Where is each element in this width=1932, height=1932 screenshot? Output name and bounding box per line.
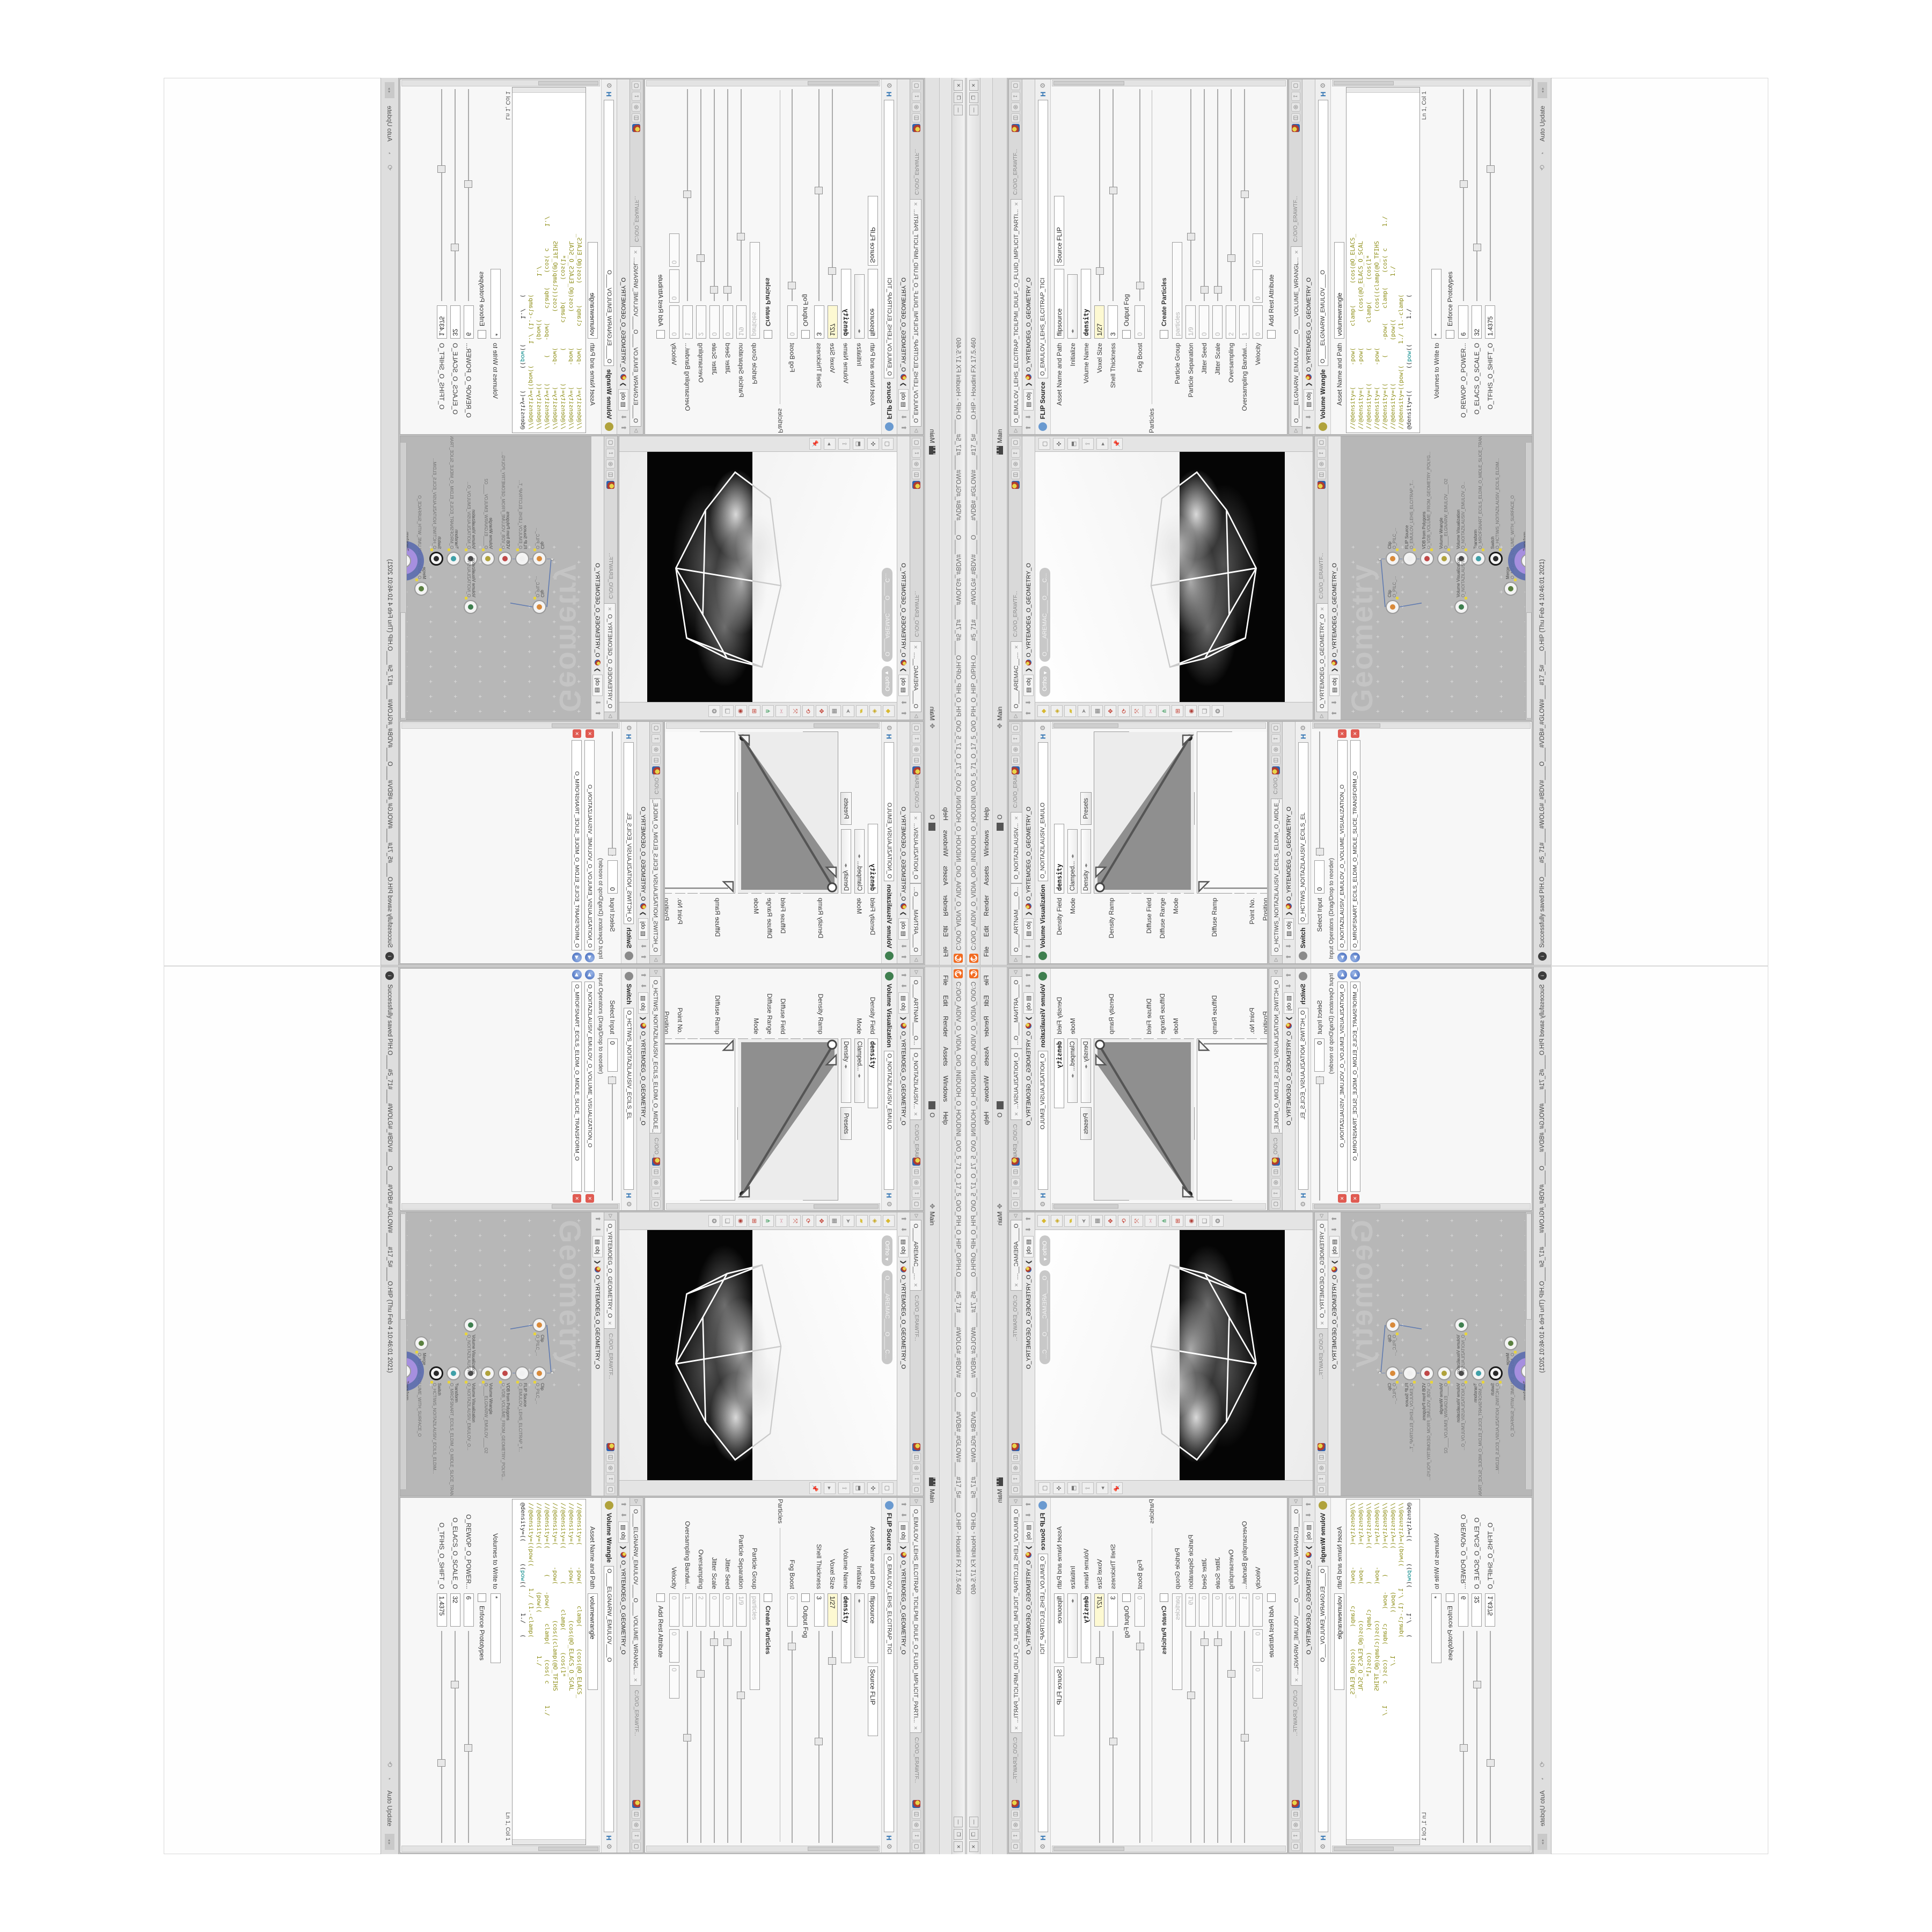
- pane-tab[interactable]: O_EMULOV_LEHS_ELCITRAP_TICILPMI_DIULF_O_…: [1011, 1505, 1022, 1733]
- close-icon[interactable]: ✕: [1294, 1678, 1300, 1682]
- help-icon[interactable]: H: [1319, 92, 1327, 97]
- node-sphere-icon[interactable]: [913, 1443, 921, 1451]
- param-field[interactable]: 0: [723, 1593, 733, 1627]
- pane-tab-secondary[interactable]: O____ARTNAM____O...: [910, 976, 921, 1049]
- pane-tab-filepath[interactable]: C:/O/O_ERAWTF...: [1293, 1690, 1299, 1800]
- desktop-selector-main[interactable]: Main: [928, 1489, 936, 1503]
- param-slider[interactable]: [710, 89, 719, 301]
- node-name-field[interactable]: O_HCTIWS_NOITAZILAUSIV_ECILS_EL: [1298, 1008, 1308, 1190]
- pin-icon[interactable]: ⟟: [1271, 734, 1280, 743]
- pane-tab-secondary[interactable]: O____ARTNAM____O...: [1011, 976, 1022, 1049]
- target-rings-icon[interactable]: ◎: [912, 459, 921, 469]
- param-field[interactable]: Source FLIP: [868, 196, 878, 266]
- checkbox[interactable]: [1446, 1593, 1454, 1602]
- breadcrumb-path[interactable]: O_YRTEMOEG_O_GEOMETRY_O: [901, 807, 907, 901]
- vex-code-editor[interactable]: //@density=( -pow( clamp( (cos(@O_ELACS_…: [1346, 1499, 1420, 1845]
- param-field[interactable]: 0: [608, 1038, 618, 1072]
- viewport-tool-icon[interactable]: ❏: [1198, 1215, 1210, 1227]
- node-name-field[interactable]: O_EMULOV_LEHS_ELCITRAP_TICI: [884, 100, 895, 378]
- node-name-field[interactable]: O_HCTIWS_NOITAZILAUSIV_ECILS_EL: [1298, 742, 1308, 924]
- breadcrumb-path[interactable]: O_YRTEMOEG_O_GEOMETRY_O: [1026, 1275, 1032, 1369]
- gear-icon[interactable]: ⚙: [1039, 725, 1046, 731]
- gear-icon[interactable]: ⚙: [605, 83, 613, 89]
- pane-collapse-icon[interactable]: ▷: [1013, 1498, 1019, 1505]
- node-sphere-icon[interactable]: [1012, 1158, 1020, 1166]
- param-slider[interactable]: [1199, 1631, 1209, 1843]
- param-field[interactable]: density: [868, 1038, 878, 1108]
- viewport-tool-icon[interactable]: ▰: [1064, 705, 1076, 717]
- layout-grid-icon[interactable]: [929, 1101, 936, 1109]
- param-field[interactable]: 0: [709, 1593, 720, 1627]
- minimize-icon[interactable]: —: [954, 105, 963, 115]
- viewport-tool-icon[interactable]: ⟳: [1118, 1215, 1130, 1227]
- viewport-tool-icon[interactable]: ◈: [869, 1215, 881, 1227]
- pane-tab-filepath[interactable]: C:/O/O_ERAWTF...: [1013, 1124, 1019, 1158]
- slider-handle[interactable]: [1136, 1643, 1144, 1650]
- param-slider[interactable]: [1485, 89, 1495, 301]
- menu-windows[interactable]: Windows: [942, 1071, 949, 1107]
- ortho-pill[interactable]: Ortho▾: [1040, 666, 1050, 697]
- density-ramp-editor[interactable]: [803, 1038, 838, 1201]
- pane-tab-filepath[interactable]: C:/O/O_ERAWTF...: [1013, 132, 1019, 195]
- network-node[interactable]: [1386, 552, 1400, 566]
- viewport-tool-icon[interactable]: ➤: [843, 1215, 854, 1227]
- maximize-pane-icon[interactable]: ▢: [1271, 723, 1280, 733]
- param-field[interactable]: 32: [450, 305, 460, 339]
- close-icon[interactable]: ✕: [913, 816, 919, 820]
- scrollbar[interactable]: [646, 80, 880, 86]
- maximize-pane-icon[interactable]: ▢: [632, 81, 641, 90]
- pane-tab-filepath[interactable]: C:/O/O_ERAWTF...: [1293, 132, 1299, 242]
- network-h-scrollbar[interactable]: [1525, 443, 1532, 720]
- breadcrumb-root[interactable]: ▤obj: [898, 675, 909, 696]
- forward-arrow-icon[interactable]: ⬇: [1305, 413, 1313, 421]
- param-field[interactable]: 0: [669, 1629, 679, 1663]
- node-sphere-icon[interactable]: [1012, 1800, 1020, 1808]
- param-field[interactable]: 0: [1253, 1665, 1263, 1699]
- cook-mode-selector[interactable]: Auto Update: [1539, 103, 1546, 145]
- param-field[interactable]: 1.4375: [437, 305, 447, 339]
- param-combo[interactable]: Clamped...◂▸: [1067, 1038, 1078, 1103]
- camera-pill[interactable]: O____AREMAC____O____C...: [882, 568, 892, 662]
- back-arrow-icon[interactable]: ⬆: [1305, 1500, 1313, 1509]
- close-icon[interactable]: ✕: [1014, 202, 1020, 206]
- pin-icon[interactable]: ⟟: [1011, 1189, 1020, 1198]
- input-operator-field[interactable]: O_MROFSNART_ECILS_ELDIM_O_MIDLE_SLICE_TR…: [572, 982, 582, 1192]
- vex-code-editor[interactable]: //@density=( -pow( clamp( (cos(@O_ELACS_…: [1346, 87, 1420, 433]
- checkbox[interactable]: [1122, 1593, 1131, 1602]
- param-slider[interactable]: [815, 89, 824, 301]
- param-slider[interactable]: [1213, 89, 1222, 301]
- viewport-tool-icon[interactable]: ⋔: [762, 705, 774, 717]
- menu-help[interactable]: Help: [983, 1107, 990, 1130]
- viewport-tool-icon[interactable]: ⊞: [749, 1215, 760, 1227]
- node-name-field[interactable]: O____ELGNARW_EMULOV____O: [604, 1566, 614, 1832]
- network-node[interactable]: [414, 582, 428, 596]
- param-slider[interactable]: [464, 1631, 473, 1843]
- param-slider[interactable]: [1472, 1631, 1481, 1843]
- close-icon[interactable]: ✕: [913, 202, 919, 206]
- menu-help[interactable]: Help: [942, 802, 949, 825]
- target-rings-icon[interactable]: ◎: [1011, 745, 1020, 754]
- maximize-pane-icon[interactable]: ▢: [1291, 1842, 1300, 1851]
- param-field[interactable]: flipsource: [1054, 269, 1064, 339]
- pane-tab-filepath[interactable]: C:/O/O_ERAWTF...: [1013, 489, 1019, 637]
- param-field[interactable]: 0: [669, 233, 679, 267]
- menu-render[interactable]: Render: [983, 1011, 990, 1042]
- maximize-pane-icon[interactable]: ▢: [1317, 438, 1326, 447]
- back-arrow-icon[interactable]: ⬆: [1024, 1500, 1033, 1509]
- pin-icon[interactable]: ⟟: [912, 1831, 921, 1840]
- vex-code-editor[interactable]: //@density=( -pow( clamp( (cos(@O_ELACS_…: [512, 87, 586, 433]
- viewport-tool-icon[interactable]: ➤: [843, 705, 854, 717]
- scrollbar-handle[interactable]: [1053, 723, 1118, 728]
- param-field[interactable]: 0: [1212, 1593, 1223, 1627]
- minimize-icon[interactable]: —: [954, 1817, 963, 1827]
- param-slider[interactable]: [1199, 89, 1209, 301]
- reorder-handle-icon[interactable]: ◀: [585, 953, 595, 962]
- forward-arrow-icon[interactable]: ⬇: [1024, 1511, 1033, 1519]
- param-field[interactable]: 0: [1314, 1038, 1324, 1072]
- slider-handle[interactable]: [1316, 1077, 1324, 1084]
- viewport-display-icon[interactable]: ⬒: [853, 1482, 865, 1494]
- pane-tab[interactable]: O_HCTIWS_NOITAZILAUSIV_ECILS_ELDIM_O_MID…: [1271, 976, 1282, 1133]
- slider-handle[interactable]: [1214, 1638, 1222, 1646]
- param-field[interactable]: volumewrangle: [588, 242, 598, 339]
- gear-icon[interactable]: ⚙: [1039, 1201, 1046, 1207]
- param-field[interactable]: 32: [450, 1593, 460, 1627]
- slider-handle[interactable]: [1487, 1759, 1495, 1767]
- back-arrow-icon[interactable]: ⬆: [899, 1214, 908, 1223]
- param-field[interactable]: particles: [750, 1593, 760, 1690]
- param-field[interactable]: 2: [696, 305, 706, 339]
- network-node[interactable]: [414, 1336, 428, 1350]
- param-slider[interactable]: [1226, 89, 1235, 301]
- checkbox[interactable]: [802, 1593, 810, 1602]
- desktop-tab-main[interactable]: Main: [996, 707, 1004, 721]
- param-field[interactable]: 0: [669, 305, 679, 339]
- pane-collapse-icon[interactable]: ▷: [914, 712, 920, 720]
- input-operator-field[interactable]: O_NOITAZILAUSIV_EMULOV_O_VOLUME_VISUALIZ…: [585, 740, 595, 950]
- close-icon[interactable]: ✕: [1014, 1726, 1020, 1730]
- pane-tab[interactable]: O____AREMAC__....✕: [1011, 1220, 1022, 1291]
- param-field[interactable]: *: [1431, 269, 1441, 339]
- gear-icon[interactable]: ⚙: [1039, 83, 1046, 89]
- node-sphere-icon[interactable]: [607, 1443, 615, 1451]
- menu-render[interactable]: Render: [942, 1011, 949, 1042]
- network-node[interactable]: [429, 1366, 443, 1380]
- slider-handle[interactable]: [451, 1681, 459, 1688]
- slider-handle[interactable]: [1201, 286, 1209, 294]
- network-node[interactable]: [1504, 1336, 1518, 1350]
- presets-button[interactable]: Presets: [840, 1107, 852, 1140]
- menu-render[interactable]: Render: [942, 890, 949, 921]
- network-node[interactable]: [1420, 1366, 1434, 1380]
- pane-tab[interactable]: O_HCTIWS_NOITAZILAUSIV_ECILS_ELDIM_O_MID…: [650, 976, 661, 1133]
- pin-icon[interactable]: ⟟: [1011, 1474, 1020, 1483]
- viewport-display-icon[interactable]: ▢: [1038, 1482, 1050, 1494]
- forward-arrow-icon[interactable]: ⬇: [899, 413, 908, 421]
- param-field[interactable]: volumewrangle: [588, 1593, 598, 1690]
- cube-icon[interactable]: ◫: [606, 470, 616, 479]
- viewport-display-icon[interactable]: ⬒: [853, 438, 865, 450]
- pane-tab[interactable]: O____AREMAC__....✕: [1011, 641, 1022, 712]
- section-label[interactable]: Particles: [777, 1499, 784, 1524]
- slider-handle[interactable]: [683, 1734, 691, 1741]
- forward-arrow-icon[interactable]: ⬇: [899, 1225, 908, 1234]
- breadcrumb-root[interactable]: ▤obj: [618, 1521, 628, 1543]
- pane-tab[interactable]: O____ELGNARW_EMULOV____O____VOLUME_WRANG…: [630, 1505, 641, 1686]
- node-name-field[interactable]: O_EMULOV_LEHS_ELCITRAP_TICI: [884, 1554, 895, 1832]
- node-name-field[interactable]: O_NOITAZILAUSIV_EMULO: [1038, 742, 1048, 881]
- breadcrumb-path[interactable]: O_YRTEMOEG_O_GEOMETRY_O: [1306, 277, 1312, 372]
- slider-handle[interactable]: [1214, 286, 1222, 294]
- param-slider[interactable]: [1186, 89, 1195, 301]
- pin-icon[interactable]: ⟟: [1291, 1831, 1300, 1840]
- help-icon[interactable]: H: [885, 1835, 894, 1840]
- cook-sphere-icon[interactable]: ◔: [385, 149, 394, 159]
- maximize-pane-icon[interactable]: ▢: [606, 438, 616, 447]
- network-node[interactable]: [1489, 552, 1503, 566]
- input-operator-field[interactable]: O_MROFSNART_ECILS_ELDIM_O_MIDLE_SLICE_TR…: [1350, 740, 1360, 950]
- param-combo[interactable]: Clamped...◂▸: [1067, 829, 1078, 894]
- close-icon[interactable]: ✕: [969, 1841, 978, 1852]
- scrollbar-handle[interactable]: [814, 723, 879, 728]
- param-slider[interactable]: [683, 1631, 692, 1843]
- param-field[interactable]: 1.4375: [437, 1593, 447, 1627]
- pane-tab[interactable]: O_NOITAZILAUSIV...✕: [910, 812, 921, 883]
- param-slider[interactable]: [1459, 1631, 1468, 1843]
- forward-arrow-icon[interactable]: ⬇: [639, 982, 648, 990]
- slider-handle[interactable]: [815, 187, 823, 194]
- pane-collapse-icon[interactable]: ▷: [1293, 1498, 1299, 1505]
- pane-tab-secondary[interactable]: O____ARTNAM____O...: [1011, 883, 1022, 956]
- viewport-tool-icon[interactable]: ⟳: [802, 705, 814, 717]
- close-icon[interactable]: ✕: [1014, 645, 1020, 649]
- breadcrumb-path[interactable]: O_YRTEMOEG_O_GEOMETRY_O: [640, 807, 647, 901]
- node-name-field[interactable]: O____ELGNARW_EMULOV____O: [1318, 1566, 1328, 1832]
- checkbox[interactable]: [764, 1593, 773, 1602]
- viewport-tool-icon[interactable]: ✥: [816, 1215, 828, 1227]
- breadcrumb-root[interactable]: ▤obj: [898, 1236, 909, 1257]
- gear-icon[interactable]: ⚙: [605, 1843, 613, 1849]
- network-node[interactable]: [515, 1366, 529, 1380]
- delete-icon[interactable]: ✕: [1338, 729, 1346, 738]
- param-field[interactable]: *: [1431, 1593, 1441, 1663]
- scrollbar[interactable]: [1312, 1203, 1531, 1210]
- maximize-pane-icon[interactable]: ▢: [632, 1842, 641, 1851]
- cube-icon[interactable]: ◫: [1291, 113, 1300, 122]
- viewport-tool-icon[interactable]: ▰: [856, 1215, 868, 1227]
- viewport-display-icon[interactable]: 📌: [809, 438, 821, 450]
- help-icon[interactable]: H: [1039, 1835, 1047, 1840]
- param-slider[interactable]: [1240, 1631, 1249, 1843]
- viewport-tool-icon[interactable]: ◈: [869, 705, 881, 717]
- viewport-tool-icon[interactable]: ✥: [1104, 705, 1116, 717]
- forward-arrow-icon[interactable]: ⬇: [1285, 982, 1293, 990]
- breadcrumb-path[interactable]: O_YRTEMOEG_O_GEOMETRY_O: [1026, 563, 1032, 657]
- help-icon[interactable]: H: [1299, 1193, 1307, 1198]
- pane-splitter-handle[interactable]: ◂ ▸: [1538, 82, 1547, 98]
- param-slider[interactable]: [1108, 89, 1117, 301]
- network-canvas[interactable]: + + + + + + + + + + + + + + + + + + + + …: [400, 1212, 591, 1496]
- scrollbar-handle[interactable]: [1314, 1204, 1380, 1209]
- diffuse-ramp-editor[interactable]: [700, 731, 735, 894]
- param-field[interactable]: particles: [750, 242, 760, 339]
- pane-collapse-icon[interactable]: ▷: [654, 956, 660, 963]
- pane-tab-filepath[interactable]: C:/O/O_ERAWTF...: [1013, 1295, 1019, 1443]
- param-combo[interactable]: ◂▸: [1067, 1593, 1078, 1658]
- maximize-pane-icon[interactable]: ▢: [1271, 1199, 1280, 1209]
- scrollbar-handle[interactable]: [1053, 81, 1124, 85]
- cube-icon[interactable]: ◫: [652, 756, 661, 765]
- param-combo[interactable]: Clamped...◂▸: [854, 1038, 865, 1103]
- pin-icon[interactable]: ⟟: [1011, 734, 1020, 743]
- node-name-field[interactable]: O_NOITAZILAUSIV_EMULO: [1038, 1051, 1048, 1190]
- breadcrumb-path[interactable]: O_YRTEMOEG_O_GEOMETRY_O: [1026, 1560, 1032, 1655]
- delete-icon[interactable]: ✕: [1338, 1194, 1346, 1203]
- slider-handle[interactable]: [683, 191, 691, 199]
- cube-icon[interactable]: ◫: [1011, 756, 1020, 765]
- param-combo[interactable]: ◂▸: [854, 1593, 865, 1658]
- node-sphere-icon[interactable]: [633, 124, 641, 132]
- viewport-display-icon[interactable]: 📌: [1111, 1482, 1123, 1494]
- cube-icon[interactable]: ◫: [912, 1810, 921, 1819]
- viewport-tool-icon[interactable]: ◉: [1185, 705, 1197, 717]
- target-rings-icon[interactable]: ◎: [1291, 103, 1300, 112]
- target-rings-icon[interactable]: ◎: [632, 103, 641, 112]
- menu-file[interactable]: File: [942, 970, 949, 990]
- desktop-selector-main[interactable]: Main: [928, 429, 936, 443]
- gear-icon[interactable]: ⚙: [885, 1201, 893, 1207]
- param-field[interactable]: 1.4375: [1485, 305, 1495, 339]
- delete-icon[interactable]: ✕: [586, 729, 594, 738]
- viewport-tool-icon[interactable]: ⟳: [1118, 705, 1130, 717]
- maximize-pane-icon[interactable]: ▢: [912, 1199, 921, 1209]
- pin-icon[interactable]: ⟟: [912, 92, 921, 101]
- target-rings-icon[interactable]: ◎: [1271, 745, 1280, 754]
- param-slider[interactable]: [697, 89, 706, 301]
- pane-collapse-icon[interactable]: ▷: [1319, 1212, 1324, 1220]
- checkbox[interactable]: [1160, 330, 1168, 339]
- scrollbar-handle[interactable]: [1314, 723, 1380, 728]
- pane-tab-filepath[interactable]: C:/O/O_ERAWTF...: [914, 1295, 920, 1443]
- slider-handle[interactable]: [710, 286, 718, 294]
- scrollbar[interactable]: [666, 1203, 880, 1210]
- maximize-pane-icon[interactable]: ▢: [652, 1199, 661, 1209]
- breadcrumb-path[interactable]: O_YRTEMOEG_O_GEOMETRY_O: [901, 1560, 907, 1655]
- back-arrow-icon[interactable]: ⬆: [594, 709, 602, 718]
- layout-grid-icon[interactable]: [997, 823, 1004, 831]
- param-field[interactable]: 1/27: [828, 305, 838, 339]
- network-node[interactable]: [1386, 1366, 1400, 1380]
- cube-icon[interactable]: ◫: [1011, 1167, 1020, 1176]
- checkbox[interactable]: [657, 1593, 665, 1602]
- pane-tab-filepath[interactable]: C:/O/O_ERAWTF...: [1013, 1737, 1019, 1800]
- param-field[interactable]: 0: [1253, 269, 1263, 303]
- maximize-pane-icon[interactable]: ▢: [1011, 1842, 1020, 1851]
- param-slider[interactable]: [1213, 1631, 1222, 1843]
- slider-handle[interactable]: [1109, 1738, 1117, 1745]
- node-name-field[interactable]: O____ELGNARW_EMULOV____O: [1318, 100, 1328, 366]
- pane-collapse-icon[interactable]: ▷: [1273, 956, 1279, 963]
- menu-file[interactable]: File: [983, 970, 990, 990]
- cube-icon[interactable]: ◫: [1317, 1453, 1326, 1462]
- target-rings-icon[interactable]: ◎: [1317, 1463, 1326, 1473]
- pane-tab[interactable]: O_NOITAZILAUSIV...✕: [910, 1049, 921, 1119]
- forward-arrow-icon[interactable]: ⬇: [619, 413, 628, 421]
- viewport-tool-icon[interactable]: ➤: [1078, 1215, 1089, 1227]
- checkbox[interactable]: [1267, 330, 1276, 339]
- viewport-tool-icon[interactable]: ◆: [1037, 705, 1049, 717]
- viewport-tool-icon[interactable]: ◆: [883, 1215, 895, 1227]
- cube-icon[interactable]: ◫: [912, 756, 921, 765]
- viewport-tool-icon[interactable]: ✂: [775, 1215, 787, 1227]
- pane-tab-filepath[interactable]: C:/O/O_ERAWTF...: [654, 774, 660, 794]
- param-slider[interactable]: [723, 89, 733, 301]
- viewport-tool-icon[interactable]: ▰: [1064, 1215, 1076, 1227]
- maximize-pane-icon[interactable]: ▢: [1011, 1199, 1020, 1209]
- diffuse-ramp-editor[interactable]: [1197, 1038, 1232, 1201]
- close-icon[interactable]: ✕: [1294, 250, 1300, 254]
- pane-tab[interactable]: O_EMULOV_LEHS_ELCITRAP_TICILPMI_DIULF_O_…: [1011, 199, 1022, 427]
- slider-handle[interactable]: [1187, 1692, 1195, 1699]
- slider-handle[interactable]: [1241, 191, 1249, 199]
- menu-windows[interactable]: Windows: [983, 825, 990, 861]
- param-combo[interactable]: ◂▸: [854, 274, 865, 339]
- viewport-tool-icon[interactable]: ⤧: [1131, 1215, 1143, 1227]
- section-label[interactable]: Particles: [777, 408, 784, 433]
- network-node[interactable]: [498, 552, 512, 566]
- slider-handle[interactable]: [451, 244, 459, 251]
- back-arrow-icon[interactable]: ⬆: [899, 953, 908, 961]
- pin-icon[interactable]: ⟟: [1317, 449, 1326, 458]
- network-node[interactable]: [464, 600, 478, 614]
- density-ramp-editor[interactable]: [803, 731, 838, 894]
- network-canvas[interactable]: + + + + + + + + + + + + + + + + + + + + …: [1341, 1212, 1532, 1496]
- checkbox[interactable]: [657, 330, 665, 339]
- param-slider[interactable]: [1315, 731, 1324, 856]
- camera-pill[interactable]: O____AREMAC____O____C...: [1040, 1270, 1050, 1364]
- viewport-display-icon[interactable]: ✜: [1053, 1482, 1065, 1494]
- forward-arrow-icon[interactable]: ⬇: [639, 942, 648, 950]
- viewport-tool-icon[interactable]: ◆: [883, 705, 895, 717]
- pin-icon[interactable]: ⟟: [606, 449, 616, 458]
- target-rings-icon[interactable]: ◎: [912, 1463, 921, 1473]
- param-slider[interactable]: [697, 1631, 706, 1843]
- reorder-handle-icon[interactable]: ◀: [1350, 970, 1360, 979]
- help-icon[interactable]: H: [1039, 734, 1047, 739]
- slider-handle[interactable]: [1096, 267, 1104, 275]
- target-rings-icon[interactable]: ◎: [606, 459, 616, 469]
- slider-handle[interactable]: [788, 282, 796, 289]
- maximize-pane-icon[interactable]: ▢: [912, 81, 921, 90]
- param-combo[interactable]: Density◂▸: [1081, 829, 1091, 894]
- maximize-icon[interactable]: ❐: [954, 1829, 963, 1840]
- network-node[interactable]: [464, 1318, 478, 1332]
- target-rings-icon[interactable]: ◎: [912, 1178, 921, 1187]
- slider-handle[interactable]: [1460, 180, 1468, 188]
- slider-handle[interactable]: [723, 1638, 731, 1646]
- viewport-tool-icon[interactable]: ⋔: [1158, 705, 1170, 717]
- maximize-pane-icon[interactable]: ▢: [652, 723, 661, 733]
- network-canvas[interactable]: + + + + + + + + + + + + + + + + + + + + …: [1341, 436, 1532, 720]
- pane-splitter-handle[interactable]: ◂ ▸: [385, 1834, 394, 1850]
- param-field[interactable]: 2: [1226, 305, 1236, 339]
- pane-tab-filepath[interactable]: C:/O/O_ERAWTF...: [1013, 774, 1019, 808]
- desktop-selector-main[interactable]: Main: [996, 429, 1004, 443]
- pane-collapse-icon[interactable]: ▷: [1319, 712, 1324, 720]
